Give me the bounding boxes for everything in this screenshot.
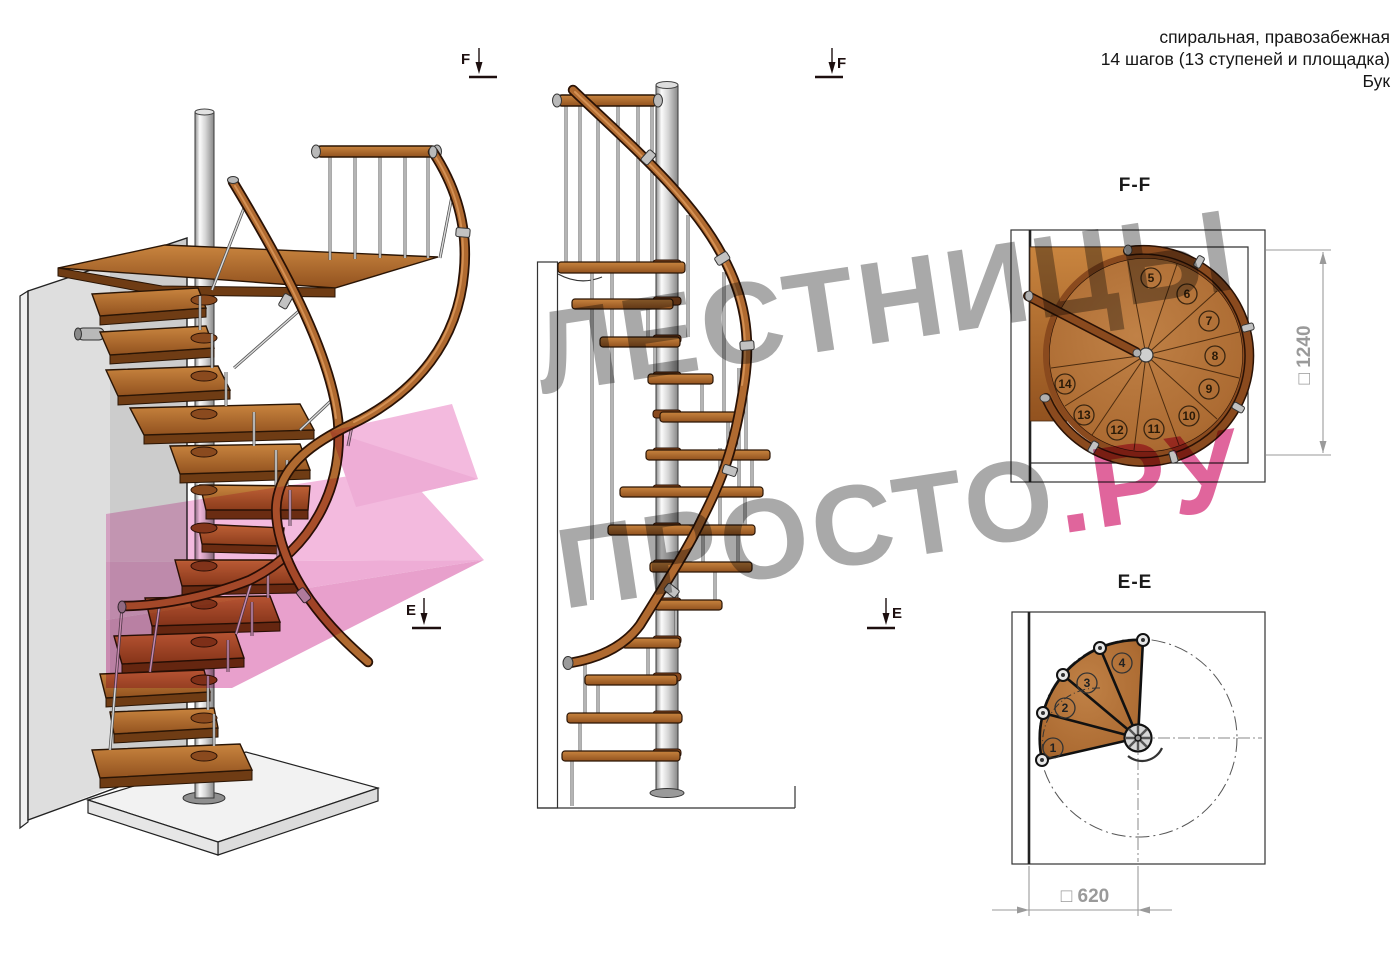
svg-text:11: 11 bbox=[1148, 422, 1161, 436]
ff-center-pole-section bbox=[1139, 348, 1153, 362]
platform-board bbox=[558, 262, 685, 273]
svg-text:12: 12 bbox=[1110, 423, 1124, 437]
ee-step-fan: 1 2 3 4 bbox=[1036, 634, 1162, 766]
svg-text:7: 7 bbox=[1206, 314, 1213, 328]
pole-top-cap-3d bbox=[195, 109, 214, 115]
svg-text:14: 14 bbox=[1058, 377, 1072, 391]
landing-rail-side bbox=[553, 94, 663, 107]
svg-text:13: 13 bbox=[1077, 408, 1091, 422]
svg-text:9: 9 bbox=[1206, 382, 1213, 396]
platform-bracket bbox=[558, 274, 602, 281]
svg-text:6: 6 bbox=[1184, 287, 1191, 301]
ee-title: E-E bbox=[1118, 572, 1153, 593]
svg-text:E: E bbox=[892, 605, 902, 622]
stair-type-text: спиральная, правозабежная bbox=[1101, 26, 1390, 48]
svg-text:F: F bbox=[837, 55, 846, 72]
svg-text:2: 2 bbox=[1062, 701, 1069, 715]
material-text: Бук bbox=[1101, 70, 1390, 92]
title-block: спиральная, правозабежная 14 шагов (13 с… bbox=[1101, 26, 1390, 92]
pole-top-cap bbox=[656, 82, 678, 89]
handrail-end-cap bbox=[563, 657, 573, 670]
step-count-text: 14 шагов (13 ступеней и площадка) bbox=[1101, 48, 1390, 70]
svg-text:E: E bbox=[406, 602, 416, 619]
wall-support-peg bbox=[75, 328, 105, 340]
svg-text:10: 10 bbox=[1182, 409, 1196, 423]
plan-view-ff: 5 6 7 8 9 10 11 12 13 14 □ 1240 F-F bbox=[1011, 175, 1331, 482]
side-wall-outline bbox=[538, 262, 558, 808]
ff-dimension: □ 1240 bbox=[1266, 250, 1331, 455]
ff-dimension-label: □ 1240 bbox=[1294, 325, 1315, 384]
section-marker-f1: F bbox=[461, 48, 497, 77]
section-marker-e1: E bbox=[406, 598, 441, 628]
plan-view-ee: 1 2 3 4 □ 620 E-E bbox=[992, 572, 1265, 916]
ee-dimension-label: □ 620 bbox=[1061, 886, 1109, 907]
svg-text:F: F bbox=[461, 51, 470, 68]
technical-drawing-sheet: 5 6 7 8 9 10 11 12 13 14 □ 1240 F-F bbox=[0, 0, 1400, 961]
side-elevation-view bbox=[537, 82, 795, 809]
svg-text:5: 5 bbox=[1148, 271, 1155, 285]
svg-text:4: 4 bbox=[1119, 656, 1126, 670]
pole-base-flange bbox=[650, 789, 684, 798]
section-marker-f2: F bbox=[815, 48, 846, 77]
ff-title: F-F bbox=[1119, 175, 1152, 196]
ee-dimension: □ 620 bbox=[992, 866, 1172, 916]
svg-text:8: 8 bbox=[1212, 349, 1219, 363]
ee-center-pole-flange bbox=[1125, 725, 1163, 761]
landing-railing-3d bbox=[312, 145, 442, 260]
staircase-drawing-canvas: 5 6 7 8 9 10 11 12 13 14 □ 1240 F-F bbox=[0, 0, 1400, 961]
svg-text:3: 3 bbox=[1084, 676, 1091, 690]
section-marker-e2: E bbox=[867, 598, 902, 628]
svg-text:1: 1 bbox=[1050, 741, 1057, 755]
